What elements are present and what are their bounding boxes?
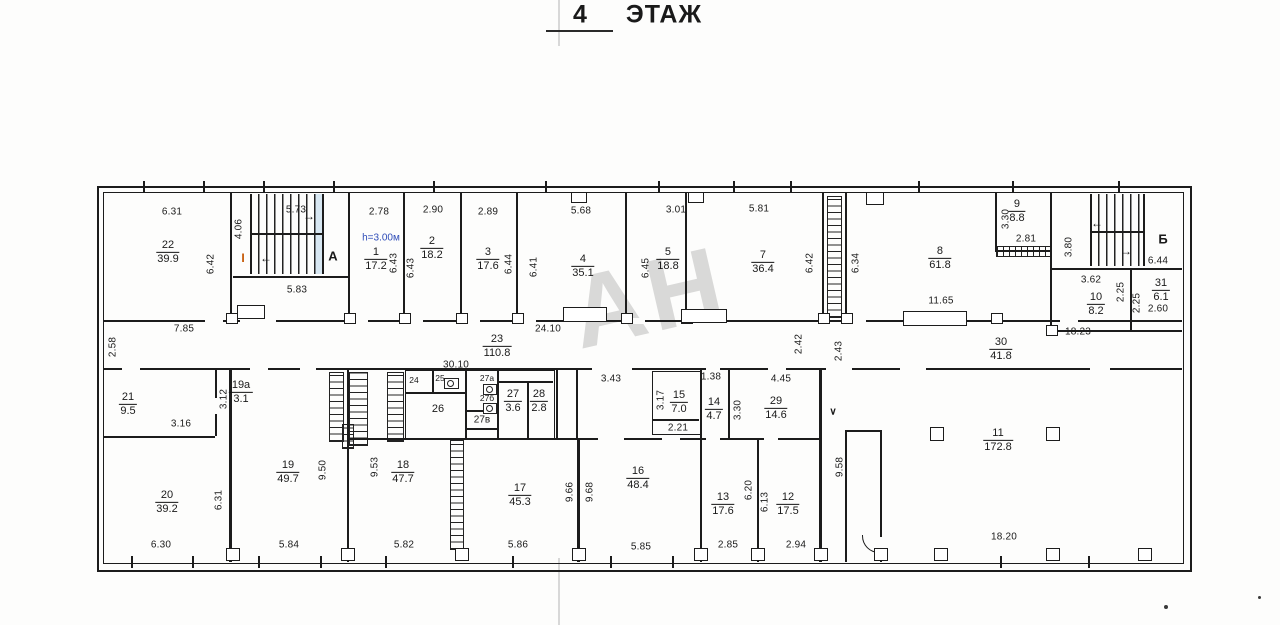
room-number: 23 (483, 333, 512, 347)
room-area: 17.5 (776, 505, 799, 518)
wall (556, 368, 558, 440)
radiator (237, 305, 265, 319)
room-label: 435.1 (571, 253, 594, 279)
dim-label: 6.20 (744, 480, 755, 500)
window-tick (385, 556, 387, 568)
section-mark: I (241, 251, 244, 265)
room-area: 36.4 (751, 263, 774, 276)
door-opening (598, 436, 624, 442)
room-area: 8.2 (1087, 305, 1105, 318)
room-area: 18.2 (420, 249, 443, 262)
room-tag: 26 (432, 403, 444, 415)
radiator (563, 307, 607, 322)
room-number: 18 (391, 459, 414, 473)
wall (576, 368, 578, 440)
pilaster (814, 548, 828, 561)
wall (822, 192, 824, 320)
dim-label: 6.42 (206, 254, 217, 274)
room-label: 1648.4 (626, 465, 649, 491)
door-opening (592, 366, 632, 372)
floor-plan: 4 ЭТАЖ АН (0, 0, 1280, 625)
pilaster (226, 548, 240, 561)
stairway-b-label: Б (1158, 232, 1167, 247)
pilaster (1046, 325, 1058, 336)
room-area: 17.6 (476, 260, 499, 273)
door-opening (1090, 366, 1110, 372)
pilaster (841, 313, 853, 324)
room-number: 17 (508, 482, 531, 496)
dim-label: 2.81 (1016, 234, 1036, 245)
room-tag: 27а (480, 373, 494, 383)
dim-label: 6.44 (1148, 256, 1168, 267)
stair-edge (1143, 194, 1145, 266)
wall (577, 438, 580, 562)
pilaster (694, 548, 708, 561)
room-area: 47.7 (391, 473, 414, 486)
window-pier (688, 192, 704, 203)
dim-label: 5.84 (279, 540, 299, 551)
room-label: 518.8 (656, 246, 679, 272)
room-area: 7.0 (670, 403, 688, 416)
wall (403, 192, 405, 320)
room-label: 861.8 (928, 245, 951, 271)
dim-label: 2.58 (108, 337, 119, 357)
dim-label: 6.42 (805, 253, 816, 273)
window-tick (258, 556, 260, 568)
window-tick (672, 556, 674, 568)
wall (652, 419, 699, 421)
stair-edge (1090, 194, 1092, 266)
room-number: 20 (155, 489, 178, 503)
room-area: 3.6 (504, 402, 522, 415)
room-label: 157.0 (670, 389, 688, 415)
dim-label: 6.43 (389, 253, 400, 273)
window-tick (918, 181, 920, 193)
room-number: 3 (476, 246, 499, 260)
room-number: 19а (229, 379, 253, 393)
window-tick (433, 181, 435, 193)
room-number: 30 (989, 336, 1012, 350)
vent-shaft (387, 372, 404, 442)
room-area: 39.2 (155, 503, 178, 516)
wall (460, 192, 462, 320)
window-pier (571, 192, 587, 203)
dim-label: 5.81 (749, 204, 769, 215)
dim-label: 2.43 (834, 341, 845, 361)
room-number: 7 (751, 249, 774, 263)
wall (845, 192, 847, 320)
room-label: 1217.5 (776, 491, 799, 517)
radiator (903, 311, 967, 326)
entry-arrow: ∨ (829, 407, 836, 418)
scan-fold-line (558, 0, 560, 46)
room-label: 1745.3 (508, 482, 531, 508)
dim-label: 3.01 (666, 205, 686, 216)
stair-edge (322, 194, 324, 274)
room-number: 2 (420, 235, 443, 249)
dim-label: 6.41 (529, 257, 540, 277)
room-area: 2.8 (530, 402, 548, 415)
room-label: 1847.7 (391, 459, 414, 485)
room-label: 273.6 (504, 388, 522, 414)
window-tick (790, 181, 792, 193)
duct-shaft (827, 196, 842, 318)
dim-label: 9.50 (318, 460, 329, 480)
room-label: 1949.7 (276, 459, 299, 485)
window-tick (320, 556, 322, 568)
dim-label: 3.30 (1001, 209, 1012, 229)
wall (347, 368, 349, 562)
dim-label: 3.16 (171, 419, 191, 430)
wall (233, 276, 348, 278)
window-tick (512, 556, 514, 568)
window-tick (610, 556, 612, 568)
stair-edge (250, 194, 252, 274)
stair-landing-line (250, 233, 322, 235)
dim-label: 5.83 (287, 285, 307, 296)
dim-label: 2.25 (1132, 293, 1143, 313)
pilaster (512, 313, 524, 324)
dim-label: 9.58 (835, 457, 846, 477)
room-label: 317.6 (476, 246, 499, 272)
room-label: 218.2 (420, 235, 443, 261)
room-number: 21 (119, 391, 137, 405)
room-tag: 25 (435, 373, 444, 383)
room-label: 23110.8 (483, 333, 512, 359)
door-opening (662, 436, 680, 442)
dim-label: 11.65 (928, 296, 953, 307)
pilaster (991, 313, 1003, 324)
pilaster (455, 548, 469, 561)
window-tick (1088, 556, 1090, 568)
room-label: 108.2 (1087, 291, 1105, 317)
room-area: 35.1 (571, 267, 594, 280)
stair-landing-line (1090, 231, 1143, 233)
room-number: 13 (711, 491, 734, 505)
room-label: 117.2 (364, 246, 387, 272)
room-area: 4.7 (705, 410, 723, 423)
wall (465, 428, 498, 430)
dim-label: 6.30 (151, 540, 171, 551)
wall (995, 250, 1050, 252)
door-opening (122, 366, 140, 372)
door-opening (300, 366, 316, 372)
dim-label: 6.44 (504, 254, 515, 274)
scan-dot (1258, 596, 1261, 599)
room-number: 1 (364, 246, 387, 260)
floor-number: 4 (573, 1, 587, 30)
window-tick (131, 556, 133, 568)
dim-label: 2.60 (1148, 304, 1168, 315)
wall (819, 368, 822, 562)
pilaster (621, 313, 633, 324)
dim-label: 4.06 (234, 219, 245, 239)
dim-label: 5.73 (286, 205, 306, 216)
window-tick (733, 181, 735, 193)
stairway-a-label: А (328, 249, 337, 264)
room-label: 219.5 (119, 391, 137, 417)
dim-label: 2.78 (369, 207, 389, 218)
room-area: 110.8 (483, 347, 512, 360)
room-number: 4 (571, 253, 594, 267)
room-area: 172.8 (983, 441, 1013, 454)
dim-label: 3.80 (1064, 237, 1075, 257)
dim-label: 6.31 (162, 207, 182, 218)
door-opening (1060, 318, 1078, 324)
window-tick (333, 181, 335, 193)
dim-label: 2.25 (1116, 282, 1127, 302)
dim-label: 2.85 (718, 540, 738, 551)
pilaster (572, 548, 586, 561)
door-opening (764, 436, 778, 442)
dim-label: 30.10 (443, 360, 469, 371)
window-tick (658, 181, 660, 193)
room-area: 6.1 (1152, 291, 1170, 304)
dim-label: 3.62 (1081, 275, 1101, 286)
room-area: 17.2 (364, 260, 387, 273)
dim-label: 5.86 (508, 540, 528, 551)
door-opening (205, 318, 223, 324)
pilaster (874, 548, 888, 561)
room-area: 9.5 (119, 405, 137, 418)
title-underline (546, 30, 613, 32)
dim-label: 5.68 (571, 206, 591, 217)
page-title: ЭТАЖ (626, 1, 702, 30)
dim-label: 6.13 (760, 492, 771, 512)
wall (845, 430, 880, 432)
wall (432, 370, 434, 392)
toilet-icon (444, 378, 459, 389)
pilaster (818, 313, 830, 324)
stair-direction-arrow: → (1120, 244, 1132, 258)
dim-label: 7.85 (174, 324, 194, 335)
wall (625, 192, 627, 320)
pilaster (341, 548, 355, 561)
room-label: 11172.8 (983, 427, 1013, 453)
door-opening (900, 366, 926, 372)
room-area: 39.9 (156, 253, 179, 266)
window-tick (545, 181, 547, 193)
window-tick (192, 556, 194, 568)
room-tag: 27в (474, 415, 490, 426)
room-area: 18.8 (656, 260, 679, 273)
room-area: 45.3 (508, 496, 531, 509)
window-tick (1118, 181, 1120, 193)
stair-direction-arrow: ← (260, 251, 272, 265)
room-number: 22 (156, 239, 179, 253)
room-number: 5 (656, 246, 679, 260)
door-opening (706, 436, 720, 442)
dim-label: 18.23 (1065, 327, 1091, 338)
pilaster (934, 548, 948, 561)
room-number: 29 (764, 395, 787, 409)
dim-label: 2.42 (794, 334, 805, 354)
dim-label: 4.45 (771, 374, 791, 385)
room-label: 1317.6 (711, 491, 734, 517)
room-number: 16 (626, 465, 649, 479)
room-tag: 24 (409, 375, 418, 385)
pilaster (456, 313, 468, 324)
pilaster (399, 313, 411, 324)
wall (728, 368, 730, 438)
column (1046, 427, 1060, 441)
wall (1050, 268, 1182, 270)
room-area: 48.4 (626, 479, 649, 492)
dim-label: 2.21 (668, 423, 688, 434)
radiator (681, 309, 727, 323)
room-label: 736.4 (751, 249, 774, 275)
room-label: 2914.6 (764, 395, 787, 421)
room-tag: 27б (480, 393, 494, 403)
stair-direction-arrow: ← (1091, 216, 1103, 230)
window-tick (1000, 556, 1002, 568)
pilaster (1046, 548, 1060, 561)
dim-label: 1.38 (701, 372, 721, 383)
wall (497, 381, 553, 383)
dim-label: 5.85 (631, 542, 651, 553)
pilaster (751, 548, 765, 561)
room-area: 14.6 (764, 409, 787, 422)
wall (845, 430, 847, 562)
dim-label: 24.10 (535, 324, 561, 335)
dim-label: 9.68 (585, 482, 596, 502)
dim-label: 2.89 (478, 207, 498, 218)
room-number: 19 (276, 459, 299, 473)
window-tick (143, 181, 145, 193)
dim-label: 2.94 (786, 540, 806, 551)
window-tick (1012, 181, 1014, 193)
room-label: 19а3.1 (229, 379, 253, 405)
room-area: 49.7 (276, 473, 299, 486)
dim-label: 6.45 (641, 258, 652, 278)
door-opening (768, 366, 786, 372)
wall (103, 436, 215, 438)
room-number: 8 (928, 245, 951, 259)
dim-label: 6.43 (406, 258, 417, 278)
dim-label: 9.66 (565, 482, 576, 502)
dim-label: 6.34 (851, 253, 862, 273)
room-number: 28 (530, 388, 548, 402)
door-opening (826, 366, 852, 372)
wall (1050, 192, 1052, 330)
room-label: 2039.2 (155, 489, 178, 515)
room-number: 15 (670, 389, 688, 403)
room-number: 11 (983, 427, 1013, 441)
wall (516, 192, 518, 320)
dim-label: 3.43 (601, 374, 621, 385)
room-number: 14 (705, 396, 723, 410)
door-opening (250, 366, 268, 372)
dim-label: 3.17 (656, 390, 667, 410)
scan-dot (1164, 605, 1168, 609)
dim-label: 18.20 (991, 532, 1017, 543)
wall (995, 192, 997, 250)
dim-label: 6.31 (214, 490, 225, 510)
room-label: 144.7 (705, 396, 723, 422)
toilet-icon (483, 403, 497, 414)
dim-label: 3.12 (219, 389, 230, 409)
room-area: 3.1 (229, 393, 253, 406)
vent-shaft (450, 440, 464, 550)
room-area: 41.8 (989, 350, 1012, 363)
pilaster (1138, 548, 1152, 561)
dim-label: 2.90 (423, 205, 443, 216)
room-number: 31 (1152, 277, 1170, 291)
dim-label: 3.30 (733, 400, 744, 420)
room-label: 2239.9 (156, 239, 179, 265)
room-label: 316.1 (1152, 277, 1170, 303)
column (930, 427, 944, 441)
room-number: 10 (1087, 291, 1105, 305)
wall (230, 192, 232, 320)
room-area: 61.8 (928, 259, 951, 272)
wall (527, 381, 529, 438)
room-number: 12 (776, 491, 799, 505)
window-tick (203, 181, 205, 193)
window-pier (866, 192, 884, 205)
dim-label: 5.82 (394, 540, 414, 551)
wall (880, 430, 882, 537)
window-tick (263, 181, 265, 193)
room-label: 282.8 (530, 388, 548, 414)
room-number: 27 (504, 388, 522, 402)
room-label: 3041.8 (989, 336, 1012, 362)
stairway-b-flights (1090, 194, 1143, 266)
wall (348, 192, 350, 320)
room-area: 17.6 (711, 505, 734, 518)
ceiling-height-note: h=3.00м (362, 233, 400, 244)
pilaster (344, 313, 356, 324)
dim-label: 9.53 (370, 457, 381, 477)
wall (405, 392, 465, 394)
